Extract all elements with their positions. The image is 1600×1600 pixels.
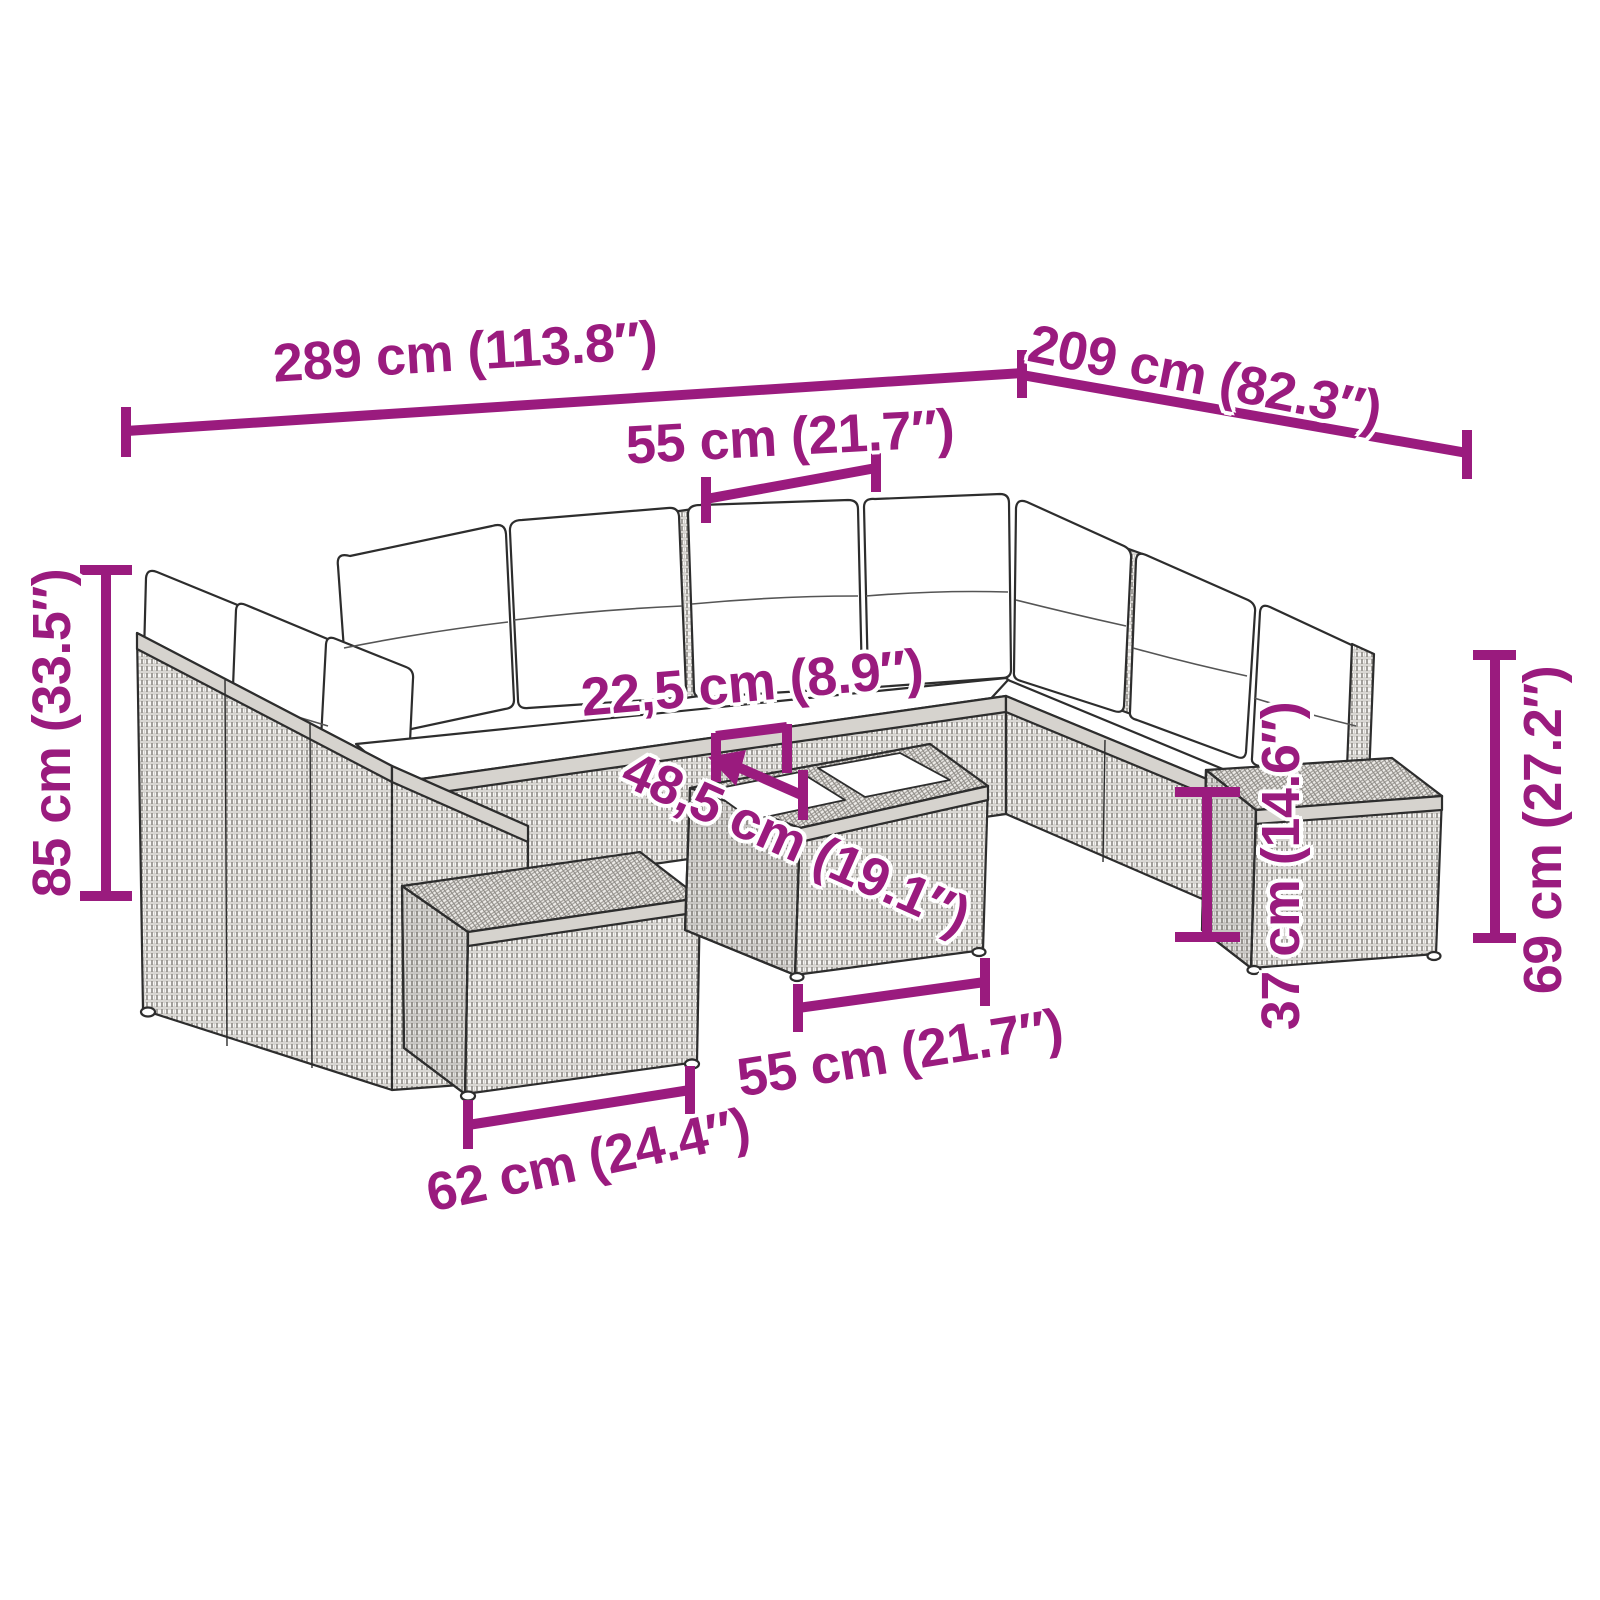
dim-line-armrest-height <box>1473 655 1516 938</box>
dim-label-total-height: 85 cm (33.5″) <box>21 569 83 898</box>
sofa-drawing <box>137 494 1442 1101</box>
dim-label-armrest-height: 69 cm (27.2″) <box>1512 666 1574 995</box>
product-dimension-diagram: 289 cm (113.8″) 209 cm (82.3″) 55 cm (21… <box>0 0 1600 1600</box>
dim-line-total-height <box>80 570 132 896</box>
sofa-illustration <box>0 0 1600 1600</box>
dim-label-seat-height: 37 cm (14.6″) <box>1250 702 1312 1031</box>
